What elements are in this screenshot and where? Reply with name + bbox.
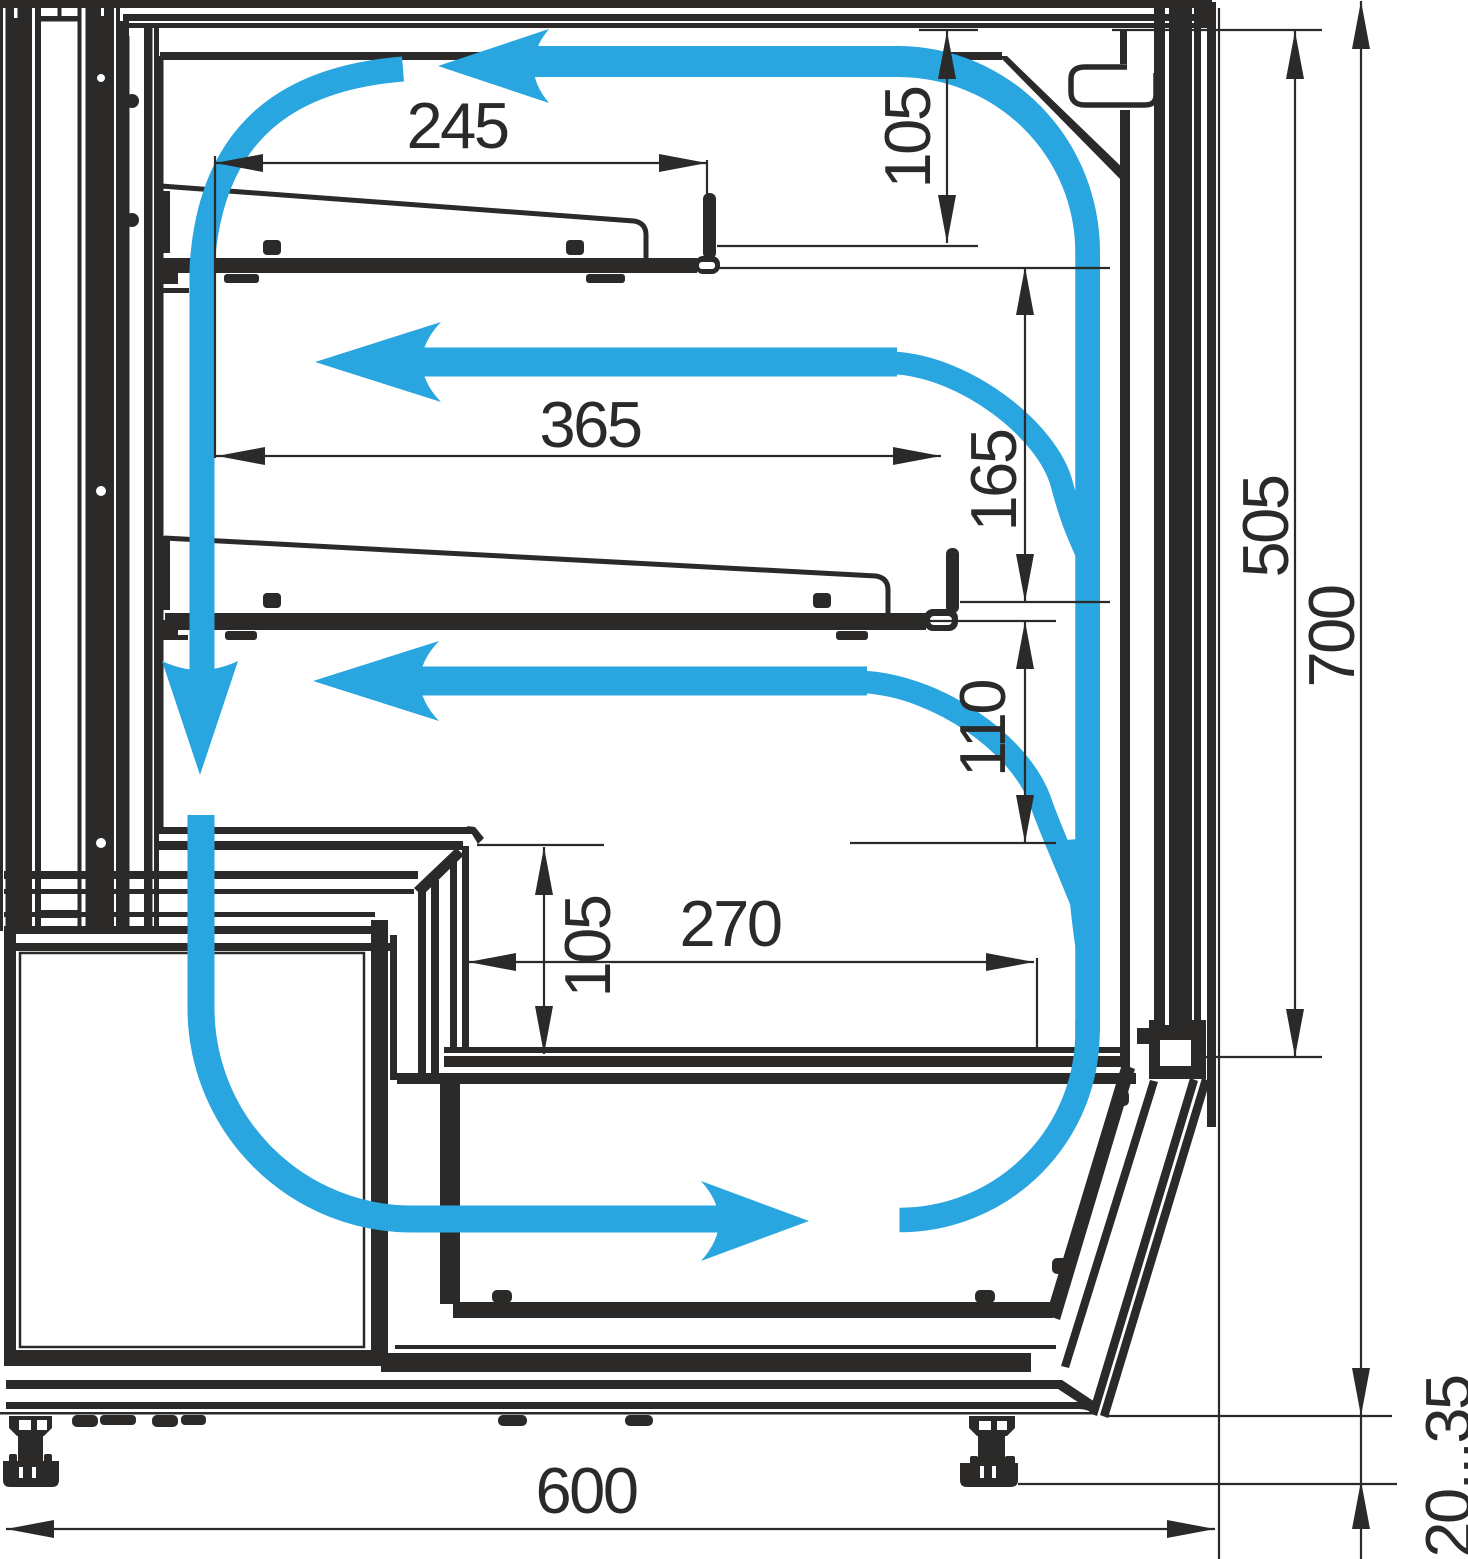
svg-text:505: 505	[1229, 476, 1302, 577]
svg-text:110: 110	[946, 681, 1019, 777]
svg-text:365: 365	[540, 388, 641, 461]
svg-text:165: 165	[957, 430, 1030, 531]
svg-text:245: 245	[407, 89, 508, 162]
svg-text:105: 105	[551, 896, 624, 997]
svg-text:600: 600	[536, 1454, 637, 1527]
svg-text:270: 270	[680, 887, 781, 960]
svg-text:700: 700	[1295, 586, 1368, 687]
svg-text:105: 105	[871, 87, 944, 188]
svg-text:20...35: 20...35	[1412, 1376, 1468, 1558]
